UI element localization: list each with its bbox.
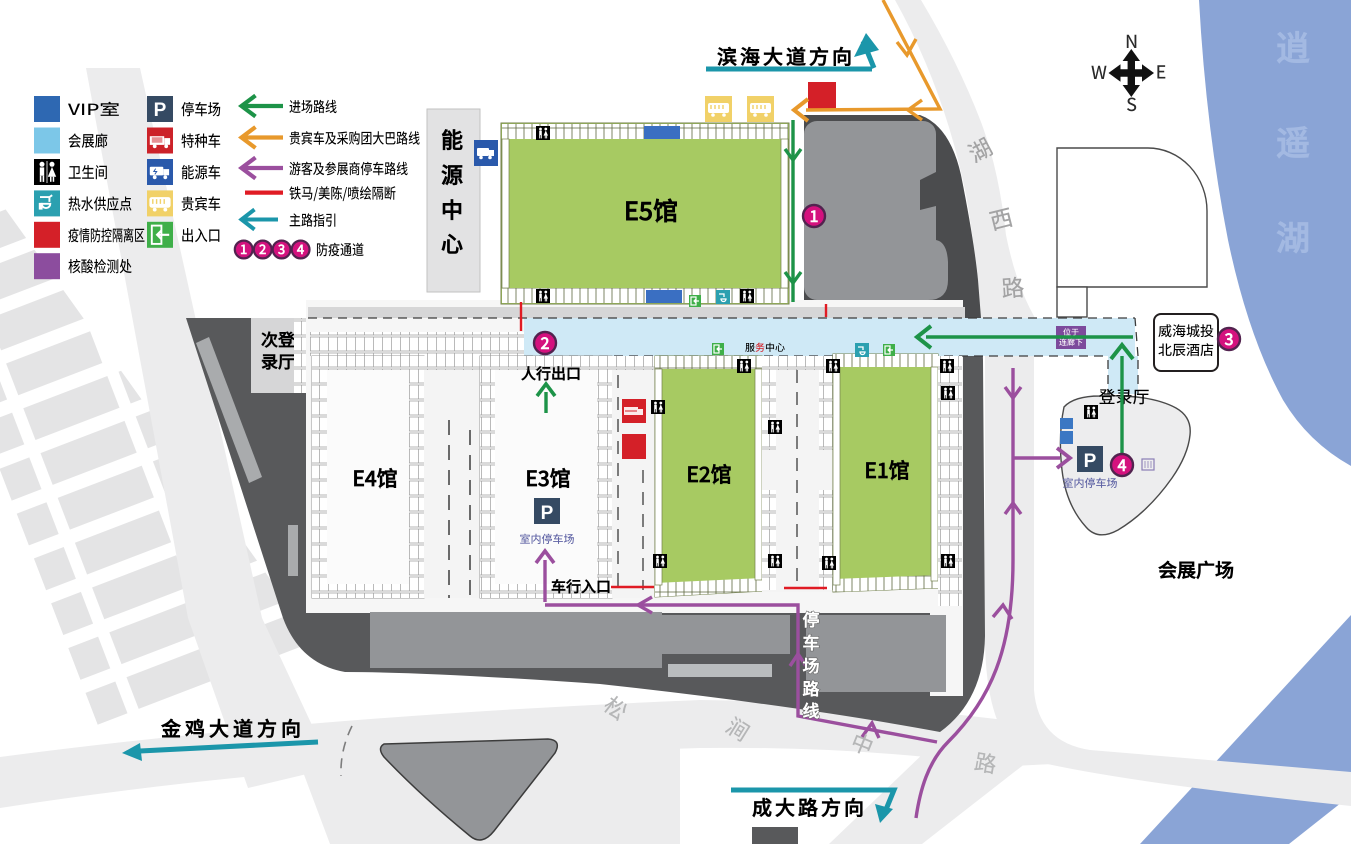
svg-text:路: 路 xyxy=(1000,268,1025,304)
svg-text:1: 1 xyxy=(809,203,818,227)
svg-text:服务中心: 服务中心 xyxy=(745,339,785,354)
svg-text:贵宾车: 贵宾车 xyxy=(181,192,221,214)
svg-text:室内停车场: 室内停车场 xyxy=(1063,475,1118,491)
svg-text:P: P xyxy=(1084,451,1097,472)
svg-text:心: 心 xyxy=(441,227,463,259)
svg-text:游客及参展商停车路线: 游客及参展商停车路线 xyxy=(289,158,408,179)
svg-text:N: N xyxy=(1125,28,1138,54)
svg-text:能源车: 能源车 xyxy=(181,161,221,183)
svg-text:3: 3 xyxy=(278,239,285,258)
svg-text:主路指引: 主路指引 xyxy=(289,209,337,230)
svg-text:E2馆: E2馆 xyxy=(686,459,731,489)
svg-text:E1馆: E1馆 xyxy=(864,455,909,485)
svg-text:E4馆: E4馆 xyxy=(352,463,397,493)
svg-text:登录厅: 登录厅 xyxy=(1099,383,1150,408)
svg-text:停: 停 xyxy=(803,606,820,631)
svg-text:车: 车 xyxy=(803,629,820,654)
svg-text:核酸检测处: 核酸检测处 xyxy=(68,255,132,277)
svg-text:滨海大道方向: 滨海大道方向 xyxy=(717,41,855,70)
svg-text:遥: 遥 xyxy=(1276,116,1310,165)
svg-text:金鸡大道方向: 金鸡大道方向 xyxy=(160,713,305,742)
svg-text:录厅: 录厅 xyxy=(261,348,295,373)
svg-text:出入口: 出入口 xyxy=(181,224,221,246)
svg-text:源: 源 xyxy=(441,158,463,190)
svg-text:4: 4 xyxy=(1117,452,1126,476)
svg-text:E: E xyxy=(1156,59,1167,85)
svg-text:湖: 湖 xyxy=(1276,211,1310,260)
svg-text:W: W xyxy=(1091,59,1107,85)
svg-text:逍: 逍 xyxy=(1276,21,1310,70)
svg-text:人行出口: 人行出口 xyxy=(520,363,581,384)
svg-text:S: S xyxy=(1126,91,1137,117)
svg-text:贵宾车及采购团大巴路线: 贵宾车及采购团大巴路线 xyxy=(289,127,420,148)
svg-text:防疫通道: 防疫通道 xyxy=(316,239,364,260)
svg-text:线: 线 xyxy=(803,697,820,722)
svg-text:VIP室: VIP室 xyxy=(67,98,120,120)
svg-text:2: 2 xyxy=(540,330,549,354)
svg-text:铁马/美陈/喷绘隔断: 铁马/美陈/喷绘隔断 xyxy=(289,182,396,203)
svg-text:场: 场 xyxy=(803,652,820,677)
svg-text:北辰酒店: 北辰酒店 xyxy=(1158,340,1214,360)
svg-text:E5馆: E5馆 xyxy=(624,192,678,228)
svg-text:威海城投: 威海城投 xyxy=(1158,321,1214,341)
svg-text:2: 2 xyxy=(259,239,266,258)
svg-text:特种车: 特种车 xyxy=(181,130,221,152)
svg-text:室内停车场: 室内停车场 xyxy=(520,531,575,547)
svg-text:3: 3 xyxy=(1224,326,1233,350)
svg-text:1: 1 xyxy=(240,239,247,258)
svg-text:进场路线: 进场路线 xyxy=(289,96,337,117)
svg-text:P: P xyxy=(154,100,167,121)
svg-text:会展廊: 会展廊 xyxy=(68,130,108,152)
svg-text:车行入口: 车行入口 xyxy=(551,576,611,597)
svg-text:成大路方向: 成大路方向 xyxy=(752,792,867,821)
svg-text:会展广场: 会展广场 xyxy=(1158,556,1234,583)
svg-text:疫情防控隔离区: 疫情防控隔离区 xyxy=(68,224,145,246)
svg-text:停车场: 停车场 xyxy=(181,98,221,120)
svg-text:能: 能 xyxy=(441,123,463,155)
svg-text:P: P xyxy=(541,503,554,524)
svg-text:4: 4 xyxy=(297,239,305,258)
svg-text:卫生间: 卫生间 xyxy=(68,161,108,183)
svg-text:中: 中 xyxy=(441,193,463,225)
svg-text:热水供应点: 热水供应点 xyxy=(68,192,132,214)
svg-text:E3馆: E3馆 xyxy=(525,463,570,493)
